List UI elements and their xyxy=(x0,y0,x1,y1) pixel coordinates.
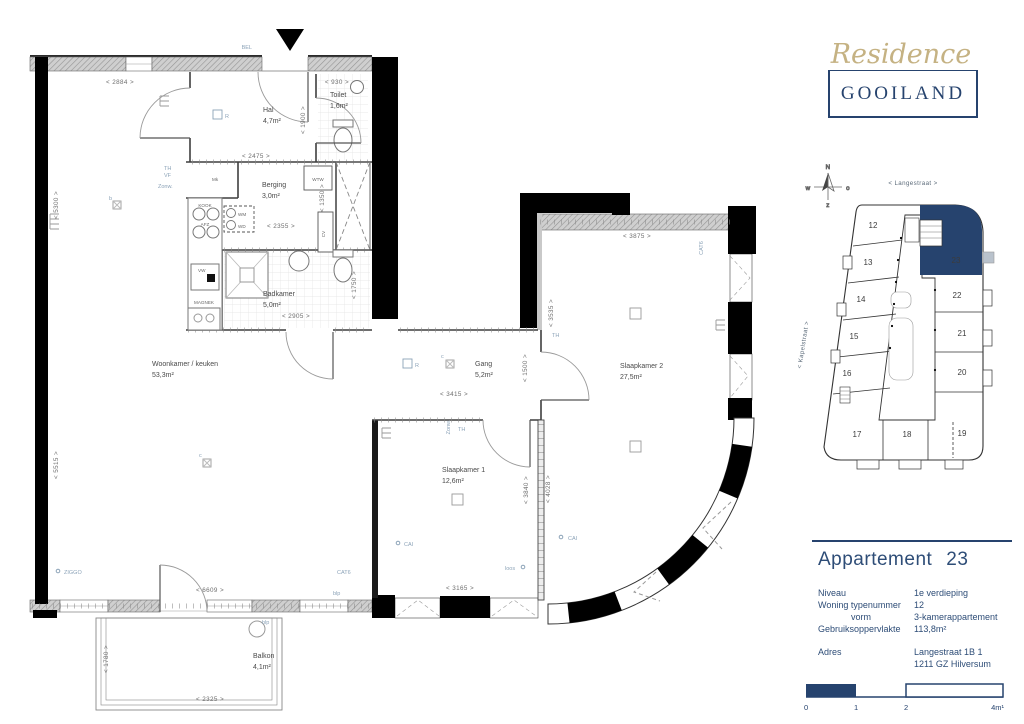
svg-text:TH: TH xyxy=(552,333,559,339)
room-slaapkamer1: Slaapkamer 1 xyxy=(442,467,485,474)
apartment-number: 23 xyxy=(946,549,968,570)
room-badkamer: Badkamer xyxy=(263,291,296,298)
svg-text:4m¹: 4m¹ xyxy=(991,703,1004,712)
svg-text:0: 0 xyxy=(804,703,808,712)
unit-15: 15 xyxy=(850,332,859,341)
unit-17: 17 xyxy=(853,430,862,439)
svg-text:c: c xyxy=(199,453,202,459)
svg-text:blp: blp xyxy=(262,620,269,626)
svg-text:4,1m²: 4,1m² xyxy=(253,664,272,671)
svg-text:loos: loos xyxy=(505,566,515,572)
svg-text:< 2884 >: < 2884 > xyxy=(106,79,134,86)
svg-text:< 2905 >: < 2905 > xyxy=(282,313,310,320)
svg-text:< 5515 >: < 5515 > xyxy=(53,451,60,479)
scale-bar: 0 1 2 4m¹ xyxy=(800,680,1012,718)
svg-text:< 2355 >: < 2355 > xyxy=(267,223,295,230)
svg-text:< 6609 >: < 6609 > xyxy=(196,587,224,594)
svg-text:< 2325 >: < 2325 > xyxy=(196,696,224,703)
svg-text:< 1780 >: < 1780 > xyxy=(103,645,110,673)
room-toilet: Toilet xyxy=(330,92,346,99)
structural-walls xyxy=(35,29,756,618)
toilet-bowl-icon xyxy=(334,258,352,282)
unit-14: 14 xyxy=(857,295,866,304)
street-kapelstraat: < Kapelstraat > xyxy=(796,321,810,369)
svg-text:b: b xyxy=(109,196,112,202)
hand-basin-icon xyxy=(351,81,364,94)
unit-12: 12 xyxy=(869,221,878,230)
svg-text:< 3165 >: < 3165 > xyxy=(446,585,474,592)
svg-text:CV: CV xyxy=(321,230,326,237)
street-langestraat: < Langestraat > xyxy=(888,180,937,187)
burner-icon xyxy=(207,208,219,220)
room-balkon: Balkon xyxy=(253,653,275,660)
bel-tag: BEL xyxy=(242,45,252,51)
svg-text:< 1900 >: < 1900 > xyxy=(300,106,307,134)
svg-text:< 3415 >: < 3415 > xyxy=(440,391,468,398)
curved-facade xyxy=(548,418,754,624)
washbasin-icon xyxy=(289,251,309,271)
brand-logo: Residence GOOILAND xyxy=(820,42,982,126)
svg-text:blp: blp xyxy=(333,591,340,597)
unit-19: 19 xyxy=(958,429,967,438)
svg-text:5,2m²: 5,2m² xyxy=(475,372,494,379)
svg-text:MAGNEK: MAGNEK xyxy=(194,300,215,305)
appliance-box xyxy=(188,308,220,330)
svg-text:2: 2 xyxy=(904,703,908,712)
svg-text:TH: TH xyxy=(458,427,465,433)
info-row-typenummer: Woning typenummer 12 xyxy=(818,599,1012,611)
room-berging: Berging xyxy=(262,182,286,189)
toilet-bowl-icon xyxy=(334,128,352,152)
svg-text:CAI: CAI xyxy=(404,542,414,548)
entrance-arrow-icon xyxy=(276,29,304,51)
svg-text:z: z xyxy=(826,202,830,209)
info-row-oppervlakte: Gebruiksoppervlakte 113,8m² xyxy=(818,623,1012,635)
apartment-info: Appartement23 Niveau 1e verdieping Wonin… xyxy=(812,540,1012,670)
floor-plan: Woonkamer / keuken 53,3m² Hal 4,7m² Toil… xyxy=(0,0,800,724)
svg-text:VW: VW xyxy=(198,268,206,273)
brand-box: GOOILAND xyxy=(828,69,978,118)
burner-icon xyxy=(193,226,205,238)
svg-text:WTW: WTW xyxy=(312,177,324,182)
apartment-word: Appartement xyxy=(818,549,932,570)
svg-text:AFZ: AFZ xyxy=(201,222,210,227)
svg-text:CAT6: CAT6 xyxy=(337,570,351,576)
svg-text:5,0m²: 5,0m² xyxy=(263,302,282,309)
svg-text:27,5m²: 27,5m² xyxy=(620,374,642,381)
unit-18: 18 xyxy=(903,430,912,439)
info-row-niveau: Niveau 1e verdieping xyxy=(818,587,1012,599)
svg-text:< 4028 >: < 4028 > xyxy=(545,475,552,503)
svg-text:< 1350 >: < 1350 > xyxy=(319,184,326,212)
svg-text:CAT6: CAT6 xyxy=(699,241,705,255)
svg-text:< 3840 >: < 3840 > xyxy=(523,476,530,504)
svg-text:3,0m²: 3,0m² xyxy=(262,193,281,200)
svg-text:c: c xyxy=(441,354,444,360)
svg-text:WM: WM xyxy=(238,212,246,217)
svg-text:Zonw.: Zonw. xyxy=(158,184,173,190)
unit-20: 20 xyxy=(958,368,967,377)
svg-text:WD: WD xyxy=(238,224,246,229)
svg-text:VF: VF xyxy=(164,173,172,179)
svg-text:4,7m²: 4,7m² xyxy=(263,118,282,125)
svg-text:< 1750 >: < 1750 > xyxy=(351,271,358,299)
svg-text:< 5300 >: < 5300 > xyxy=(53,191,60,219)
mk-label: Mk xyxy=(212,177,219,182)
unit-23-balcony xyxy=(983,252,994,263)
unit-23: 23 xyxy=(952,256,961,265)
svg-text:R: R xyxy=(225,114,229,120)
svg-text:N: N xyxy=(826,164,831,171)
unit-22: 22 xyxy=(953,291,962,300)
svg-text:12,6m²: 12,6m² xyxy=(442,478,464,485)
svg-text:R: R xyxy=(415,363,419,369)
room-labels: Woonkamer / keuken 53,3m² Hal 4,7m² Toil… xyxy=(152,92,663,671)
toilet-tank xyxy=(333,250,353,257)
info-row-adres: Adres Langestraat 1B 1 1211 GZ Hilversum xyxy=(818,646,1012,670)
svg-text:< 3875 >: < 3875 > xyxy=(623,233,651,240)
stairwell xyxy=(920,220,942,246)
scale-open-segment xyxy=(906,684,1003,697)
svg-text:TH: TH xyxy=(164,166,171,172)
svg-text:53,3m²: 53,3m² xyxy=(152,372,174,379)
svg-text:KOOK: KOOK xyxy=(198,203,212,208)
svg-text:< 1500 >: < 1500 > xyxy=(522,354,529,382)
divider xyxy=(812,540,1012,542)
brand-script: Residence xyxy=(824,39,979,70)
compass-icon: N w o z xyxy=(805,164,851,209)
site-plan: N w o z < Langestraat > < Kapelstraat > xyxy=(795,160,1010,475)
toilet-tank xyxy=(333,120,353,127)
svg-text:o: o xyxy=(846,185,850,192)
svg-text:< 3535 >: < 3535 > xyxy=(548,299,555,327)
ziggo-tag: ZIGGO xyxy=(64,570,82,576)
floorplan-page: Woonkamer / keuken 53,3m² Hal 4,7m² Toil… xyxy=(0,0,1024,724)
svg-text:w: w xyxy=(805,185,811,192)
info-row-vorm: vorm 3-kamerappartement xyxy=(818,611,1012,623)
svg-text:1: 1 xyxy=(854,703,858,712)
room-hal: Hal xyxy=(263,107,274,114)
svg-text:Zonw.: Zonw. xyxy=(446,419,452,434)
svg-text:1,6m²: 1,6m² xyxy=(330,103,349,110)
page-title: Appartement23 xyxy=(818,549,1012,571)
info-rows: Niveau 1e verdieping Woning typenummer 1… xyxy=(818,587,1012,670)
svg-text:CAI: CAI xyxy=(568,536,578,542)
brand-name: GOOILAND xyxy=(841,83,965,105)
unit-16: 16 xyxy=(843,369,852,378)
svg-text:< 930 >: < 930 > xyxy=(325,79,349,86)
svg-text:< 2475 >: < 2475 > xyxy=(242,153,270,160)
unit-13: 13 xyxy=(864,258,873,267)
service-shaft xyxy=(224,162,370,252)
burner-icon xyxy=(193,208,205,220)
scale-filled-segment xyxy=(806,684,856,697)
unit-21: 21 xyxy=(958,329,967,338)
room-gang: Gang xyxy=(475,361,492,368)
room-woonkamer: Woonkamer / keuken xyxy=(152,361,218,368)
burner-icon xyxy=(207,226,219,238)
room-slaapkamer2: Slaapkamer 2 xyxy=(620,363,663,370)
